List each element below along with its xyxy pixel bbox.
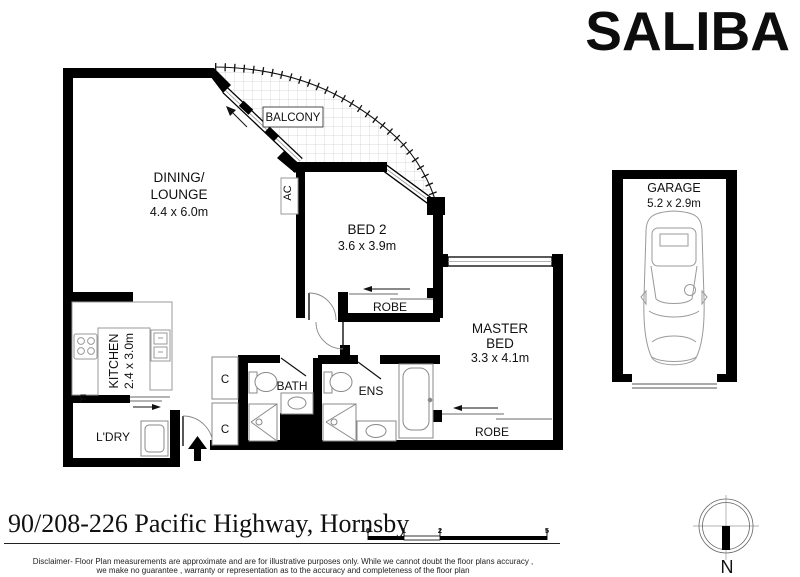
closet-top-label: C xyxy=(221,374,229,386)
master-label-1: MASTER xyxy=(472,321,529,336)
dining-label-1: DINING/ xyxy=(153,170,204,185)
cooktop xyxy=(74,334,97,359)
kitchen-dims: 2.4 x 3.0m xyxy=(122,333,136,389)
master-dims: 3.3 x 4.1m xyxy=(471,351,529,365)
master-door-arc xyxy=(316,322,343,349)
dining-dims: 4.4 x 6.0m xyxy=(150,205,208,219)
bed2-robe-label: ROBE xyxy=(373,300,407,314)
ens-label: ENS xyxy=(359,384,384,398)
laundry-tub xyxy=(141,421,168,456)
dining-label-2: LOUNGE xyxy=(150,187,207,202)
closet-bottom-label: C xyxy=(221,424,229,436)
ens-door-leaf xyxy=(358,362,381,379)
property-address: 90/208-226 Pacific Highway, Hornsby xyxy=(8,509,409,539)
ens-shower xyxy=(323,404,356,441)
bed2-door-arc xyxy=(309,293,336,320)
fridge-label: F xyxy=(79,394,86,406)
ens-fixtures xyxy=(323,364,433,441)
balcony-label: BALCONY xyxy=(266,112,321,124)
floor-plan-drawing: BALCONY DINING/ LOUNGE 4.4 x 6.0m AC BED… xyxy=(0,0,800,577)
ens-bathtub xyxy=(399,364,433,438)
north-compass: N xyxy=(693,495,759,577)
floor-plan-page: SALIBA xyxy=(0,0,800,577)
bath-door-leaf xyxy=(281,358,306,376)
garage-label: GARAGE xyxy=(647,181,701,195)
entry-arrow xyxy=(188,436,207,461)
car xyxy=(641,211,707,365)
garage-dims: 5.2 x 2.9m xyxy=(647,198,701,210)
north-needle xyxy=(722,526,730,550)
north-label: N xyxy=(721,557,734,577)
bed2-dims: 3.6 x 3.9m xyxy=(338,239,396,253)
kitchen-label-group: KITCHEN 2.4 x 3.0m xyxy=(107,333,136,389)
ac-label: AC xyxy=(282,185,294,200)
bed2-label: BED 2 xyxy=(347,222,386,237)
kitchen-label: KITCHEN xyxy=(107,334,121,389)
disclaimer-line-2: we make no guarantee , warranty or repre… xyxy=(0,566,566,575)
master-robe-label: ROBE xyxy=(475,425,509,439)
address-rule xyxy=(4,543,560,544)
disclaimer-line-1: Disclaimer- Floor Plan measurements are … xyxy=(0,557,566,566)
bath-label: BATH xyxy=(276,379,307,393)
master-label-2: BED xyxy=(486,336,514,351)
bath-shower xyxy=(249,404,277,441)
laundry-label: L'DRY xyxy=(96,430,130,444)
